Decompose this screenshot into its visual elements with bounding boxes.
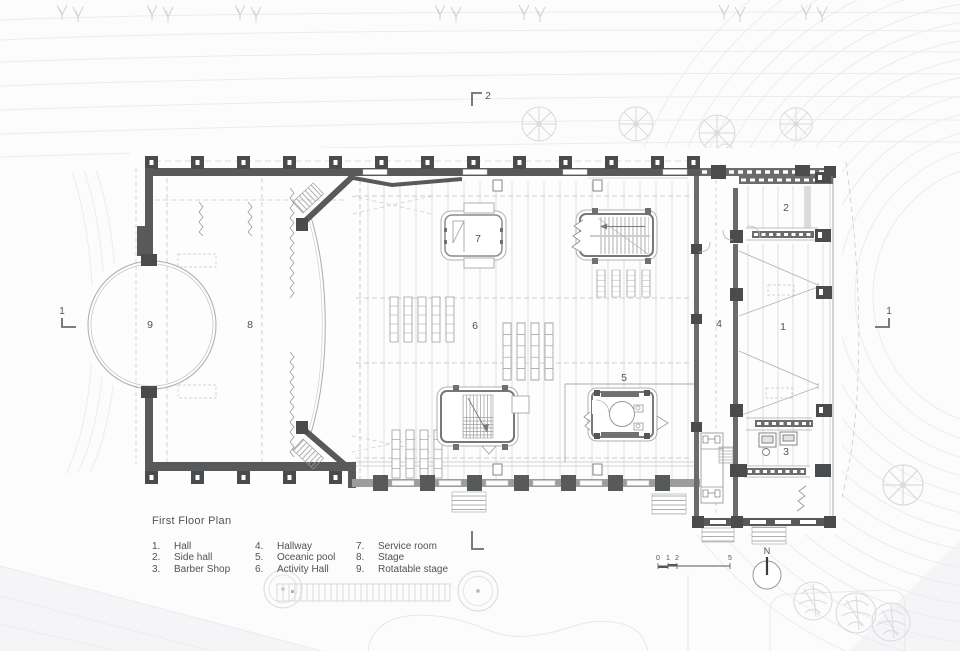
room-label-rotatable-stage: 9: [147, 319, 153, 331]
legend-item: 2.Side hall: [152, 552, 230, 563]
service-room: [441, 203, 506, 268]
svg-text:2: 2: [675, 555, 679, 562]
floor-plan-page: 1 2 3 4 5 6 7 8 9 2 1 1 0 1 2 5 N First …: [0, 0, 960, 651]
shrub-row: [57, 5, 827, 22]
legend-item: 5.Oceanic pool: [255, 552, 335, 563]
legend-item: 9.Rotatable stage: [356, 564, 448, 575]
oceanic-pool-room: [584, 388, 668, 441]
tree-icon: [458, 571, 498, 611]
tree-icon: [522, 107, 556, 141]
tree-icon: [883, 465, 923, 505]
room-label-activity-hall: 6: [472, 320, 478, 332]
plan-title: First Floor Plan: [152, 515, 231, 527]
room-label-hall: 1: [780, 321, 786, 333]
floor-plan-drawing: 1 2 3 4 5 6 7 8 9 2 1 1 0 1 2 5 N: [0, 0, 960, 651]
svg-text:5: 5: [728, 555, 732, 562]
north-arrow: N: [753, 546, 781, 589]
legend-item: 7.Service room: [356, 541, 448, 552]
room-label-oceanic-pool: 5: [621, 372, 627, 384]
legend-item: 6.Activity Hall: [255, 564, 335, 575]
section-marker-left-label: 1: [59, 306, 65, 317]
tree-icon: [794, 582, 832, 620]
section-marker-top: [472, 93, 482, 106]
legend-item: 1.Hall: [152, 541, 230, 552]
legend-column-2: 4.Hallway 5.Oceanic pool 6.Activity Hall: [255, 541, 335, 575]
svg-text:1: 1: [666, 555, 670, 562]
legend-column-1: 1.Hall 2.Side hall 3.Barber Shop: [152, 541, 230, 575]
section-marker-left: [62, 318, 76, 327]
section-marker-top-label: 2: [485, 91, 491, 102]
tree-icon: [780, 108, 812, 140]
room-label-side-hall: 2: [783, 202, 789, 214]
legend-item: 3.Barber Shop: [152, 564, 230, 575]
room-label-service-room: 7: [475, 233, 481, 245]
tree-icon: [619, 107, 653, 141]
legend-column-3: 7.Service room 8.Stage 9.Rotatable stage: [356, 541, 448, 575]
room-label-stage: 8: [247, 319, 253, 331]
room-label-barber-shop: 3: [783, 446, 789, 458]
pool-circle: [610, 402, 635, 427]
section-marker-right-label: 1: [886, 306, 892, 317]
north-label: N: [764, 546, 771, 556]
room-label-hallway: 4: [716, 318, 722, 330]
tree-icon: [836, 593, 876, 633]
legend-item: 4.Hallway: [255, 541, 335, 552]
svg-text:0: 0: [656, 555, 660, 562]
legend-item: 8.Stage: [356, 552, 448, 563]
pergola: [277, 584, 450, 601]
